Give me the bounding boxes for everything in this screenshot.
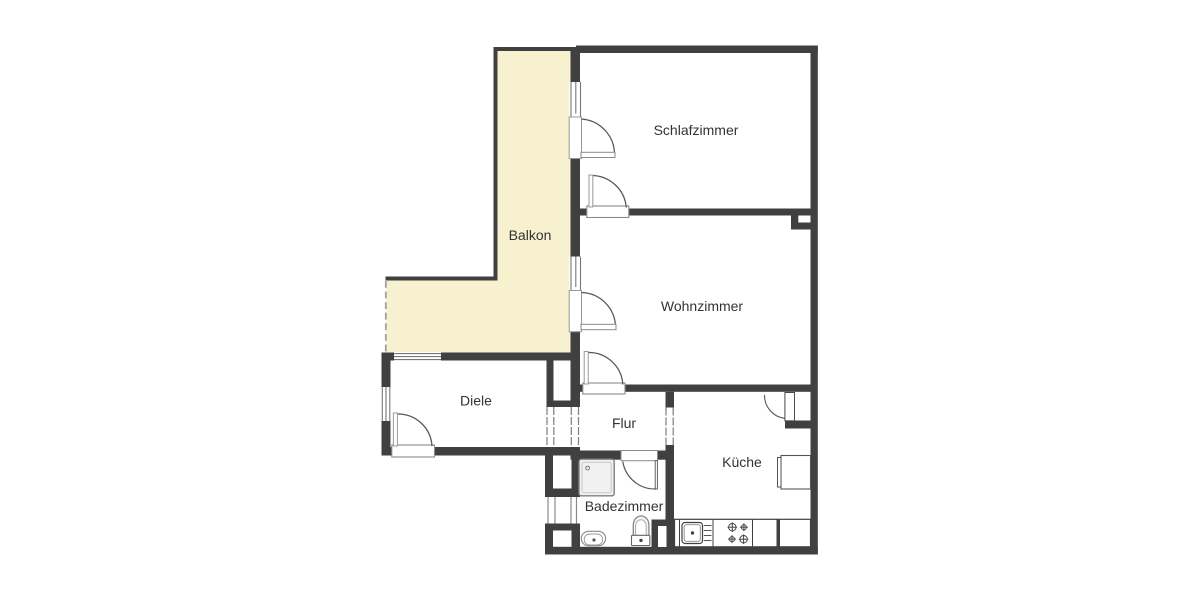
svg-text:Badezimmer: Badezimmer	[585, 498, 664, 514]
svg-text:Balkon: Balkon	[509, 227, 552, 243]
svg-text:Flur: Flur	[612, 415, 636, 431]
svg-text:Schlafzimmer: Schlafzimmer	[654, 122, 739, 138]
svg-text:Küche: Küche	[722, 454, 762, 470]
svg-text:Diele: Diele	[460, 393, 492, 409]
svg-text:Wohnzimmer: Wohnzimmer	[661, 298, 744, 314]
